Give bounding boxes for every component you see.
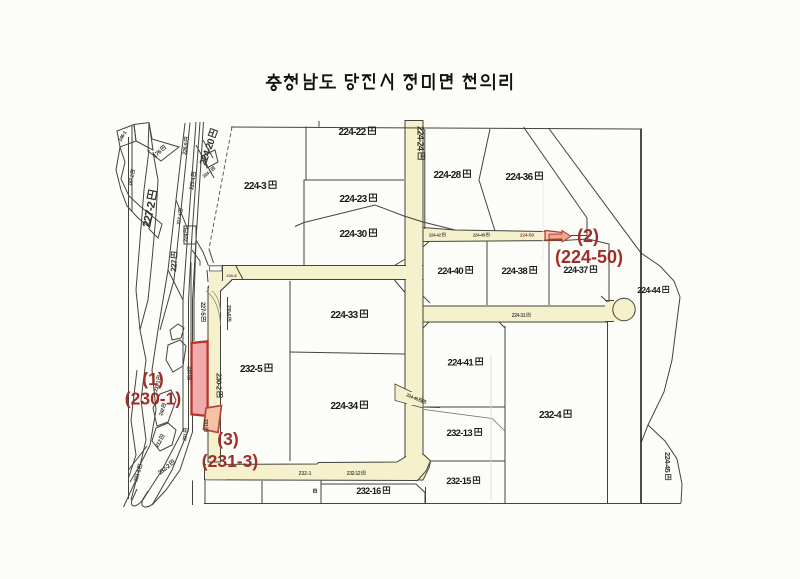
svg-text:224-33: 224-33	[331, 310, 359, 321]
svg-text:(231-3): (231-3)	[202, 451, 258, 471]
svg-text:(230-1): (230-1)	[125, 389, 181, 409]
svg-text:232-12: 232-12	[347, 471, 361, 477]
svg-text:(1): (1)	[142, 369, 163, 389]
svg-text:(2): (2)	[577, 226, 599, 246]
svg-text:232-16: 232-16	[356, 486, 381, 496]
svg-text:224-28: 224-28	[434, 170, 462, 181]
svg-text:224-36: 224-36	[506, 172, 534, 183]
svg-text:224-3: 224-3	[244, 181, 267, 192]
svg-text:232-5: 232-5	[240, 364, 263, 375]
svg-text:224-45: 224-45	[663, 452, 672, 473]
svg-text:224-31: 224-31	[512, 313, 526, 319]
svg-text:230-2: 230-2	[215, 373, 224, 390]
svg-text:231: 231	[182, 433, 189, 442]
svg-text:231: 231	[202, 419, 208, 427]
svg-text:227-5: 227-5	[199, 302, 205, 316]
svg-text:230-8: 230-8	[226, 273, 237, 278]
svg-text:224-40: 224-40	[437, 266, 463, 277]
svg-text:230: 230	[186, 366, 192, 374]
svg-text:232-13: 232-13	[446, 428, 472, 439]
svg-text:227: 227	[169, 259, 179, 273]
svg-text:232-4: 232-4	[539, 410, 562, 421]
svg-text:224-44: 224-44	[637, 285, 661, 295]
svg-text:224-23: 224-23	[340, 194, 368, 205]
svg-text:224-49: 224-49	[473, 233, 486, 238]
svg-text:224-24: 224-24	[416, 126, 426, 151]
svg-text:230-6: 230-6	[225, 305, 231, 317]
svg-text:224-22: 224-22	[339, 127, 367, 138]
svg-text:224-30: 224-30	[340, 229, 368, 240]
svg-text:224-42: 224-42	[429, 233, 442, 238]
svg-text:224-50: 224-50	[520, 233, 535, 238]
svg-text:(3): (3)	[217, 429, 238, 449]
svg-text:224-38: 224-38	[501, 266, 527, 277]
svg-text:(224-50): (224-50)	[555, 247, 623, 267]
svg-text:232-15: 232-15	[446, 476, 471, 486]
svg-text:224-41: 224-41	[447, 358, 474, 369]
svg-text:232-1: 232-1	[299, 471, 312, 477]
svg-text:224-34: 224-34	[331, 401, 359, 412]
